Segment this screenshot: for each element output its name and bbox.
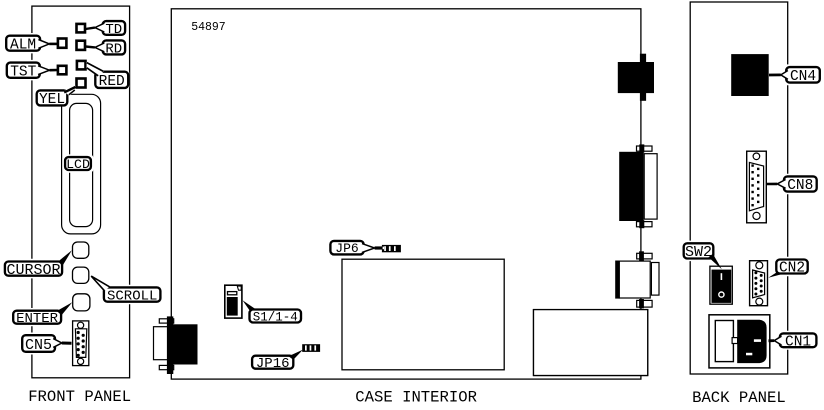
svg-text:RED: RED bbox=[99, 74, 125, 90]
svg-text:CURSOR: CURSOR bbox=[6, 262, 60, 279]
svg-text:LCD: LCD bbox=[66, 157, 90, 172]
svg-text:CN5: CN5 bbox=[25, 337, 52, 354]
svg-text:JP16: JP16 bbox=[256, 356, 290, 372]
svg-text:CASE INTERIOR: CASE INTERIOR bbox=[355, 389, 477, 407]
svg-text:SCROLL: SCROLL bbox=[107, 289, 157, 305]
svg-text:ALM: ALM bbox=[10, 37, 36, 53]
svg-text:TST: TST bbox=[10, 64, 36, 80]
svg-text:YEL: YEL bbox=[39, 92, 65, 108]
svg-text:CN2: CN2 bbox=[779, 261, 805, 277]
svg-text:BACK PANEL: BACK PANEL bbox=[692, 389, 786, 407]
svg-text:CN1: CN1 bbox=[785, 334, 811, 350]
svg-text:S1/1-4: S1/1-4 bbox=[253, 310, 298, 324]
svg-text:CN4: CN4 bbox=[790, 69, 816, 85]
svg-text:TD: TD bbox=[105, 22, 122, 38]
svg-text:ENTER: ENTER bbox=[16, 311, 59, 327]
svg-text:JP6: JP6 bbox=[335, 241, 358, 256]
svg-text:FRONT PANEL: FRONT PANEL bbox=[28, 388, 131, 406]
svg-text:SW2: SW2 bbox=[685, 244, 712, 261]
svg-text:CN8: CN8 bbox=[787, 178, 813, 194]
svg-text:54897: 54897 bbox=[191, 21, 226, 34]
svg-text:RD: RD bbox=[105, 41, 122, 57]
